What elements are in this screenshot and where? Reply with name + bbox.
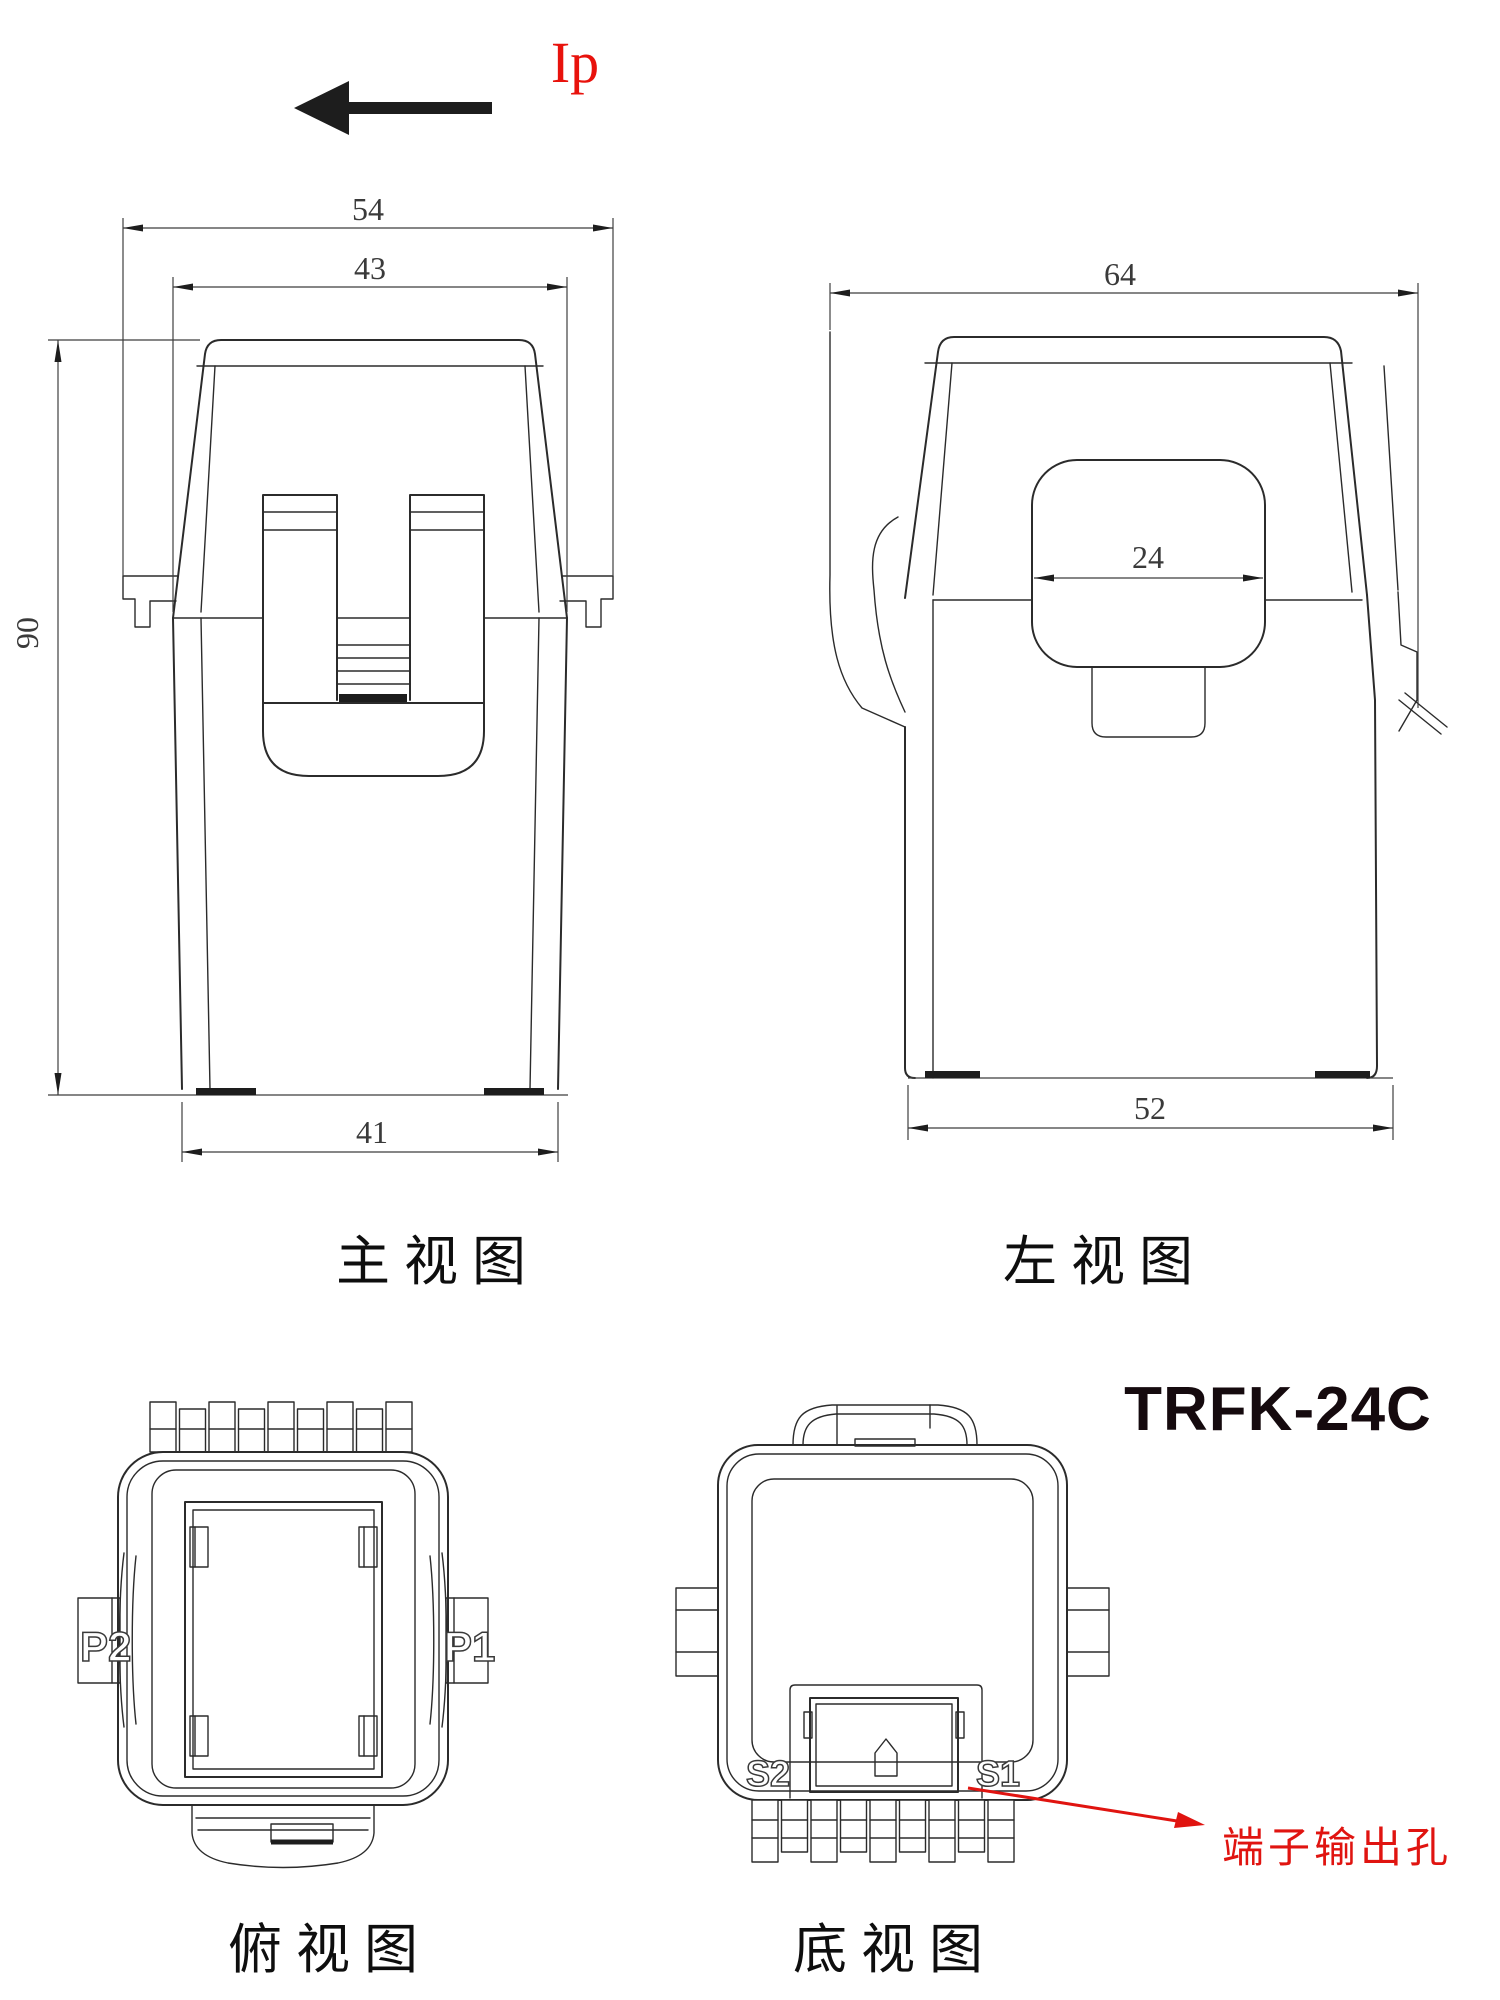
front-right-foot <box>484 1088 544 1095</box>
front-left-foot <box>196 1088 256 1095</box>
ip-current-arrow: Ip <box>294 30 599 135</box>
top-window-outer <box>185 1502 382 1777</box>
top-hinge-comb <box>150 1402 412 1452</box>
front-dim-54-label: 54 <box>352 191 384 227</box>
top-tongue-clip <box>192 1805 374 1868</box>
left-right-hook <box>1398 592 1447 734</box>
top-terminal-p1-label: P1 <box>444 1623 495 1670</box>
top-view: P2 P1 <box>78 1402 495 1868</box>
left-dim-bottom-width: 52 <box>908 1085 1393 1140</box>
left-view-caption: 左视图 <box>1003 1232 1207 1292</box>
front-cap-outline <box>173 340 567 618</box>
front-u-channel <box>263 700 484 776</box>
front-body-inner-walls <box>201 618 539 1089</box>
bottom-tongue-clip <box>793 1405 977 1446</box>
front-center-bar <box>339 694 407 703</box>
terminal-output-hole <box>810 1698 958 1792</box>
top-body-outline <box>118 1452 448 1805</box>
orientation-arrow-icon <box>875 1739 897 1776</box>
top-terminal-p2-label: P2 <box>80 1623 131 1670</box>
top-body-face <box>152 1470 415 1788</box>
bottom-hinge-comb <box>752 1800 1014 1862</box>
front-dim-41-label: 41 <box>356 1114 388 1150</box>
bottom-terminal-s1-label: S1 <box>976 1753 1020 1794</box>
callout-text: 端子输出孔 <box>1222 1826 1452 1872</box>
top-window-inner <box>193 1510 374 1769</box>
front-prong-lines <box>263 512 484 530</box>
front-dim-height: 90 <box>9 340 200 1095</box>
left-cap-inner-walls <box>933 363 1398 595</box>
bottom-body-second-outline <box>727 1454 1058 1791</box>
front-center-ladder <box>337 618 410 684</box>
left-latch-inner-edge <box>873 517 905 712</box>
front-dim-90-label: 90 <box>9 617 45 649</box>
front-view-caption: 主视图 <box>336 1232 540 1292</box>
ip-label: Ip <box>551 30 599 95</box>
front-cap-inner-walls <box>201 366 539 612</box>
left-window-tab <box>1092 667 1205 737</box>
left-view: 64 24 52 <box>830 256 1447 1140</box>
technical-drawing: Ip 54 <box>0 0 1500 2000</box>
front-body-walls <box>173 618 567 1089</box>
front-view: 54 43 90 41 <box>9 191 613 1162</box>
top-body-second-outline <box>127 1461 439 1796</box>
bottom-terminal-recess <box>790 1685 982 1798</box>
bottom-view: S2 S1 端子输出孔 <box>676 1405 1452 1872</box>
left-dim-64-label: 64 <box>1104 256 1136 292</box>
left-dim-24-label: 24 <box>1132 539 1164 575</box>
left-dim-52-label: 52 <box>1134 1090 1166 1126</box>
left-right-foot <box>1315 1071 1370 1078</box>
model-title: TRFK-24C <box>1124 1375 1432 1444</box>
front-right-prong <box>410 495 484 700</box>
bottom-view-caption: 底视图 <box>793 1920 997 1980</box>
left-dim-window-width: 24 <box>1034 539 1263 582</box>
bottom-body-face <box>752 1479 1033 1762</box>
left-dim-overall-width: 64 <box>830 256 1418 708</box>
front-dim-cap-width: 43 <box>173 250 567 612</box>
left-arrow-icon <box>294 81 492 135</box>
bottom-left-tab <box>676 1588 718 1676</box>
front-dim-bottom-width: 41 <box>182 1102 558 1162</box>
top-window-slots <box>190 1527 377 1756</box>
top-right-tab: P1 <box>430 1553 495 1727</box>
left-left-foot <box>925 1071 980 1078</box>
bottom-terminal-s2-label: S2 <box>746 1753 790 1794</box>
top-view-caption: 俯视图 <box>228 1920 432 1980</box>
front-left-prong <box>263 495 337 700</box>
left-latch-lever <box>830 332 905 727</box>
callout-arrowhead-icon <box>1174 1812 1205 1828</box>
front-left-wing-hook <box>123 576 178 627</box>
front-dim-43-label: 43 <box>354 250 386 286</box>
bottom-right-tab <box>1067 1588 1109 1676</box>
terminal-output-callout: 端子输出孔 <box>968 1788 1452 1872</box>
